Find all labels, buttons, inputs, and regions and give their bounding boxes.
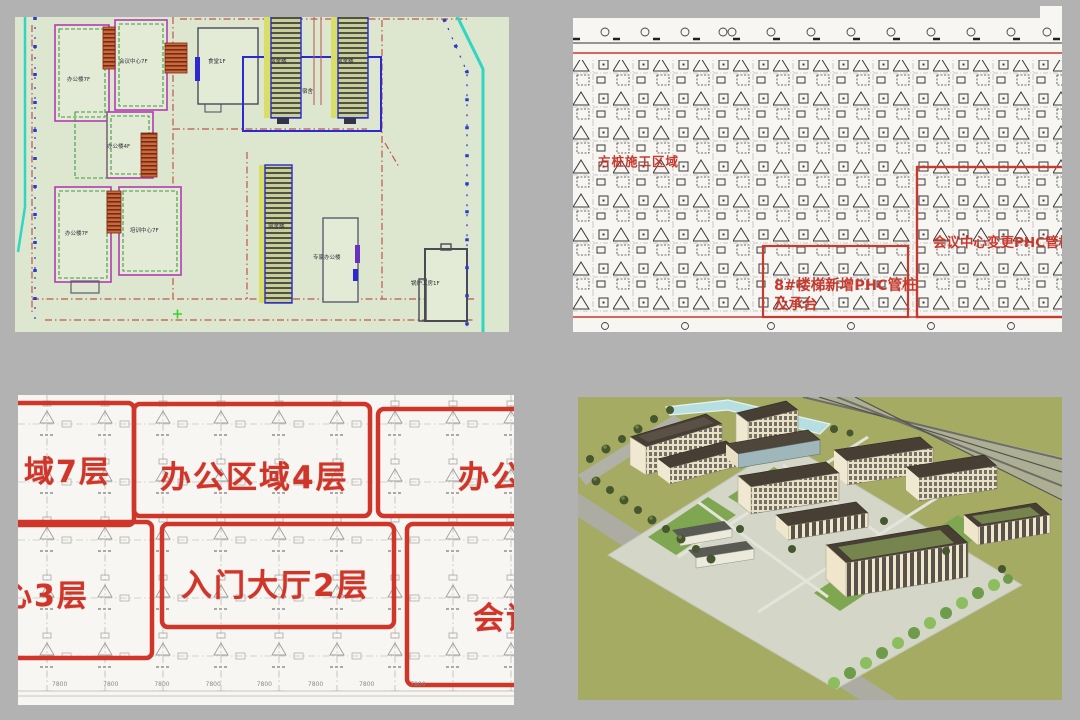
- building-label: 宿舍楼: [270, 57, 287, 65]
- center-note-label: 会议中心变更PHC管桩: [933, 231, 1062, 251]
- site-plan-image: 办公楼7F 会议中心7F 办公楼4F 办公楼7F 培训中心7F 食堂1F 宿舍楼…: [15, 17, 509, 332]
- canteen-building: [195, 28, 258, 112]
- drawing-collage: 办公楼7F 会议中心7F 办公楼4F 办公楼7F 培训中心7F 食堂1F 宿舍楼…: [0, 0, 1080, 720]
- rendering-image: [578, 397, 1062, 700]
- zone-label-lobby-2f: 入门大厅2层: [181, 560, 370, 605]
- pile-plan-image: 方桩施工区域 8#楼梯新增PHC管桩 及承台 会议中心变更PHC管桩: [573, 18, 1062, 332]
- building-label: 宿舍楼: [337, 57, 354, 65]
- pile-area-label: 方桩施工区域: [598, 151, 679, 170]
- dimension-row: 7800 7800 7800 7800 7800 7800 7800 7800: [52, 681, 426, 688]
- building-label: 培训中心7F: [130, 226, 159, 234]
- building-label: 宿舍: [302, 87, 313, 95]
- zone-label-conference-partial: 会议: [473, 593, 514, 638]
- building-label: 专家办公楼: [313, 253, 341, 261]
- dormitory-south: [259, 165, 292, 303]
- zone-label-center-3f: 心3层: [18, 571, 89, 615]
- building-label: 食堂1F: [208, 57, 226, 65]
- rendering-drawing: [578, 397, 1062, 700]
- zone-plan-drawing: [18, 395, 514, 705]
- building-label: 办公楼4F: [107, 142, 130, 150]
- stair-note-line1: 8#楼梯新增PHC管桩: [774, 274, 917, 295]
- zone-label-office-4f: 办公区域4层: [160, 452, 349, 497]
- building-label: 会议中心7F: [119, 57, 148, 65]
- building-label: 锅炉工房1F: [411, 279, 440, 287]
- zone-label-7f: 域7层: [24, 447, 111, 491]
- zone-plan-image: 域7层 办公区域4层 办公 心3层 入门大厅2层 会议 7800 7800 78…: [18, 395, 514, 705]
- building-label: 办公楼7F: [65, 229, 88, 237]
- building-label: 宿舍楼: [268, 222, 285, 230]
- building-label: 办公楼7F: [67, 75, 90, 83]
- stair-note-line2: 及承台: [774, 293, 818, 314]
- zone-label-office-partial: 办公: [458, 452, 514, 497]
